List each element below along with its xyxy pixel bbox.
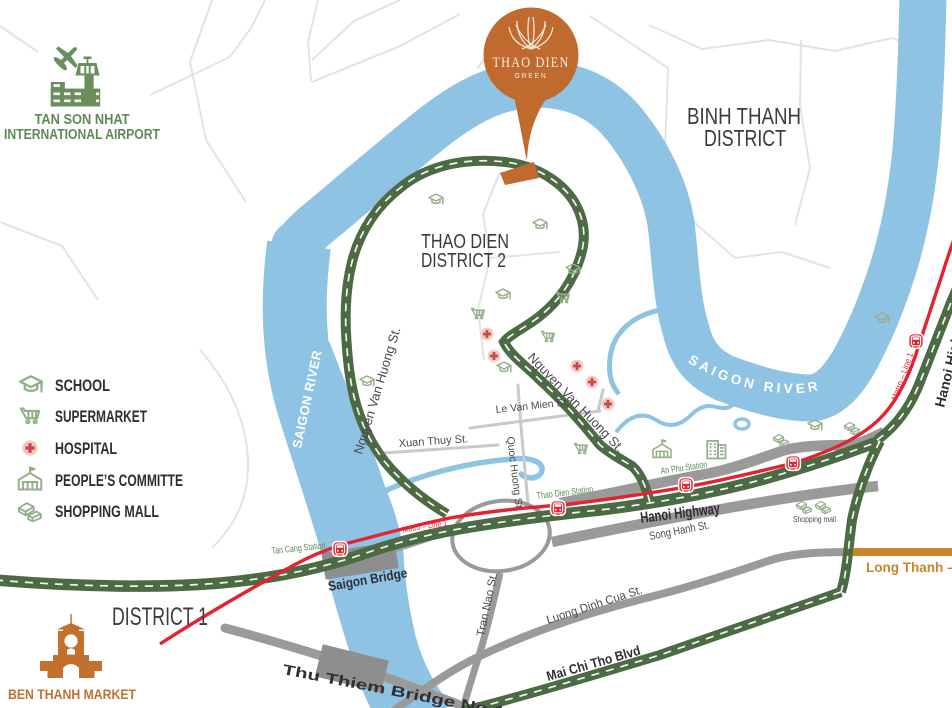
svg-text:HOSPITAL: HOSPITAL <box>55 439 117 458</box>
svg-text:INTERNATIONAL AIRPORT: INTERNATIONAL AIRPORT <box>4 127 160 143</box>
svg-text:THAO DIEN: THAO DIEN <box>493 55 570 71</box>
svg-text:BEN THANH MARKET: BEN THANH MARKET <box>8 686 136 702</box>
svg-text:DISTRICT 2: DISTRICT 2 <box>421 250 506 272</box>
svg-text:DISTRICT: DISTRICT <box>704 125 786 151</box>
svg-text:DISTRICT 1: DISTRICT 1 <box>112 603 208 631</box>
svg-text:SHOPPING MALL: SHOPPING MALL <box>55 502 159 521</box>
svg-text:GREEN: GREEN <box>515 71 548 80</box>
svg-text:TAN SON NHAT: TAN SON NHAT <box>35 112 130 128</box>
svg-text:SUPERMARKET: SUPERMARKET <box>55 407 147 426</box>
svg-text:Long Thanh – Da: Long Thanh – Da <box>866 560 952 575</box>
svg-text:PEOPLE’S COMMITTE: PEOPLE’S COMMITTE <box>55 471 183 490</box>
svg-text:SCHOOL: SCHOOL <box>55 376 110 395</box>
svg-text:Shopping mall: Shopping mall <box>793 514 836 524</box>
